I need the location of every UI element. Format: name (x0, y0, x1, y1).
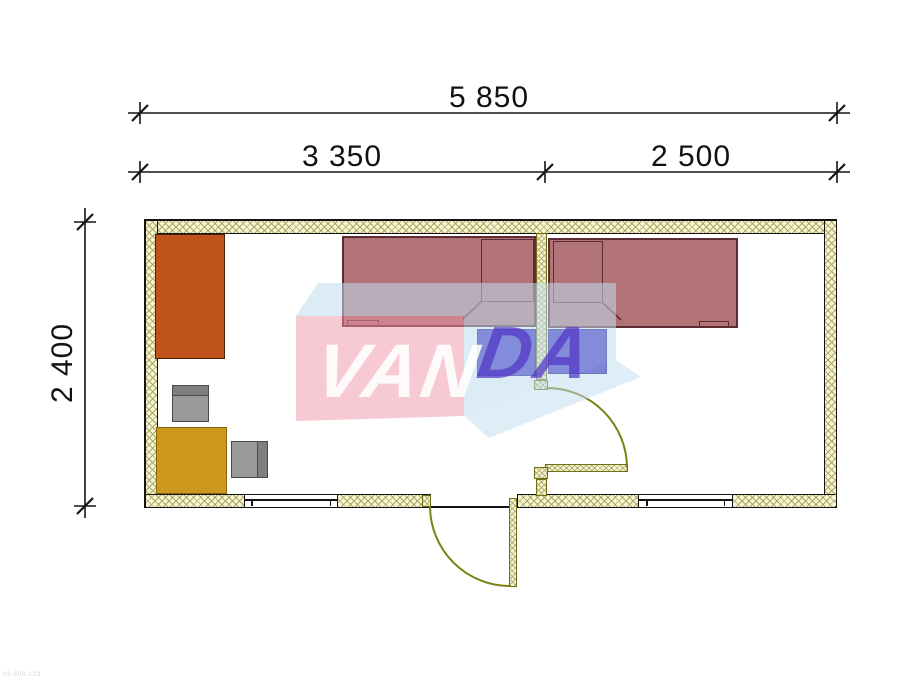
dimension-label-section-left: 3 350 (302, 140, 382, 174)
watermark-top-face (296, 283, 486, 316)
watermark-text-van: VAN (310, 334, 486, 410)
drawing-stamp: 01.600.123 (3, 671, 41, 678)
dimension-label-depth: 2 400 (46, 323, 80, 403)
watermark-text-da: DA (473, 316, 598, 390)
floor-plan-drawing: VAN DA 5 850 3 350 2 500 2 400 01.600.12… (0, 0, 924, 700)
dimension-label-overall-width: 5 850 (449, 81, 529, 115)
dimension-label-section-right: 2 500 (651, 140, 731, 174)
